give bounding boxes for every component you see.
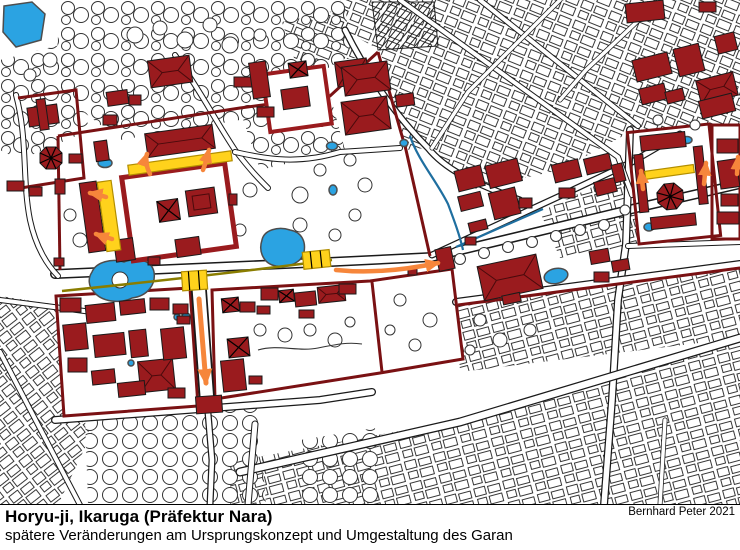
north-hall: [147, 55, 192, 88]
northwest-pond: [3, 2, 45, 47]
arrow-toin-east: [704, 163, 706, 184]
yellow-gate-east: [302, 250, 331, 270]
screenshot: Horyu-ji, Ikaruga (Präfektur Nara) späte…: [0, 0, 740, 550]
five-story-pagoda: [157, 199, 181, 223]
large-pond: [261, 228, 305, 266]
hatched-field: [372, 2, 438, 50]
map-canvas: [0, 0, 740, 505]
east-hall-upper: [341, 61, 391, 96]
page-title: Horyu-ji, Ikaruga (Präfektur Nara): [5, 507, 272, 527]
kondo-hall: [185, 187, 217, 217]
attribution: Bernhard Peter 2021: [628, 506, 735, 518]
east-hall-lower: [341, 96, 391, 135]
arrow-right-edge: [737, 157, 738, 174]
arrow-toin-west: [641, 171, 643, 189]
south-gate: [195, 395, 222, 414]
page-subtitle: spätere Veränderungen am Ursprungskonzep…: [5, 527, 513, 544]
chumon-gate: [175, 236, 201, 257]
yellow-gate-west: [181, 270, 207, 291]
caption: Horyu-ji, Ikaruga (Präfektur Nara) späte…: [0, 505, 740, 550]
